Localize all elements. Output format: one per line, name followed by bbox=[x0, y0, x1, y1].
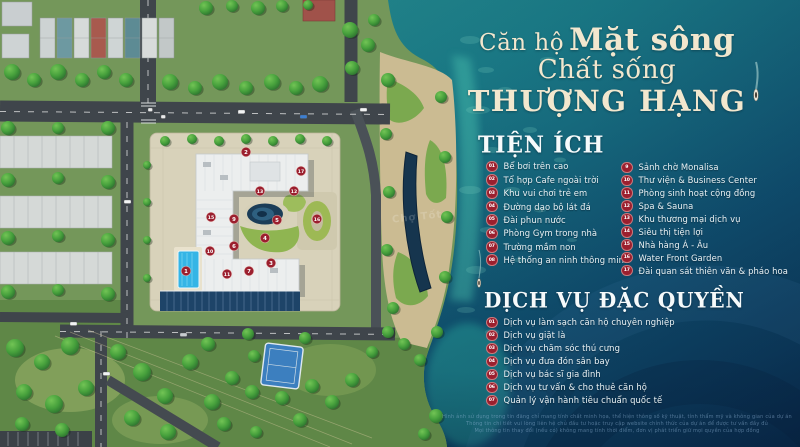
legend-number-badge: 04 bbox=[486, 356, 498, 368]
legend-item: 07Quản lý vận hành tiêu chuẩn quốc tế bbox=[486, 396, 675, 405]
legend-item: 04Dịch vụ đưa đón sân bay bbox=[486, 357, 675, 366]
headline-emphasis: Mặt sông bbox=[569, 22, 735, 58]
legend-label: Khu thương mại dịch vụ bbox=[639, 214, 741, 224]
legend-label: Nhà hàng Á - Âu bbox=[639, 240, 709, 250]
svg-text:10: 10 bbox=[207, 249, 213, 255]
legend-item: 06Dịch vụ tư vấn & cho thuê căn hộ bbox=[486, 383, 675, 392]
legend-number-badge: 05 bbox=[486, 214, 498, 226]
legend-label: Dịch vụ đưa đón sân bay bbox=[504, 356, 610, 366]
legend-item: 9Sảnh chờ Monalisa bbox=[621, 163, 788, 172]
svg-text:3: 3 bbox=[269, 261, 273, 267]
legend-item: 01Bể bơi trên cao bbox=[486, 162, 629, 171]
svg-text:17: 17 bbox=[298, 169, 304, 175]
legend-item: 17Đài quan sát thiên văn & pháo hoa bbox=[621, 266, 788, 275]
legend-label: Trường mầm non bbox=[504, 242, 576, 252]
legend-label: Dịch vụ bác sĩ gia đình bbox=[504, 369, 601, 379]
legend-label: Dịch vụ chăm sóc thú cưng bbox=[504, 343, 621, 353]
svg-text:13: 13 bbox=[257, 189, 263, 195]
legend-label: Sảnh chờ Monalisa bbox=[639, 162, 719, 172]
legend-label: Spa & Sauna bbox=[639, 201, 694, 211]
legend-item: 15Nhà hàng Á - Âu bbox=[621, 240, 788, 249]
legend-item: 01Dịch vụ làm sạch căn hộ chuyên nghiệp bbox=[486, 318, 675, 327]
legend-label: Bể bơi trên cao bbox=[504, 161, 569, 171]
disclaimer: Hình ảnh sử dụng trong tin đăng chỉ mang… bbox=[438, 414, 796, 435]
map-marker-9: 9 bbox=[229, 214, 239, 224]
legend-item: 03Khu vui chơi trẻ em bbox=[486, 189, 629, 198]
map-marker-3: 3 bbox=[266, 258, 276, 268]
legend-label: Dịch vụ tư vấn & cho thuê căn hộ bbox=[504, 382, 648, 392]
legend-label: Quản lý vận hành tiêu chuẩn quốc tế bbox=[504, 395, 663, 405]
legend-label: Water Front Garden bbox=[639, 253, 723, 263]
legend-item: 11Phòng sinh hoạt cộng đồng bbox=[621, 189, 788, 198]
legend-number-badge: 02 bbox=[486, 330, 498, 342]
legend-label: Siêu thị tiện lợi bbox=[639, 227, 704, 237]
legend-item: 05Đài phun nước bbox=[486, 216, 629, 225]
svg-text:11: 11 bbox=[224, 272, 230, 278]
legend-label: Đường dạo bộ lát đá bbox=[504, 202, 591, 212]
legend-label: Tổ hợp Cafe ngoài trời bbox=[504, 175, 599, 185]
disclaimer-line: Hình ảnh sử dụng trong tin đăng chỉ mang… bbox=[438, 414, 796, 421]
map-marker-10: 10 bbox=[205, 246, 215, 256]
legend-label: Phòng sinh hoạt cộng đồng bbox=[639, 188, 756, 198]
legend-number-badge: 03 bbox=[486, 343, 498, 355]
legend-number-badge: 13 bbox=[621, 213, 633, 225]
svg-text:16: 16 bbox=[314, 217, 320, 223]
legend-number-badge: 12 bbox=[621, 200, 633, 212]
legend-item: 06Phòng Gym trong nhà bbox=[486, 229, 629, 238]
svg-text:9: 9 bbox=[232, 217, 236, 223]
svg-text:5: 5 bbox=[275, 218, 279, 224]
legend-item: 08Hệ thống an ninh thông minh bbox=[486, 256, 629, 265]
legend-number-badge: 08 bbox=[486, 254, 498, 266]
residential-complex bbox=[150, 133, 340, 311]
map-marker-5: 5 bbox=[272, 215, 282, 225]
legend-item: 14Siêu thị tiện lợi bbox=[621, 227, 788, 236]
legend-number-badge: 06 bbox=[486, 228, 498, 240]
map-marker-13: 13 bbox=[255, 186, 265, 196]
map-marker-6: 6 bbox=[229, 241, 239, 251]
roof-core bbox=[250, 162, 280, 181]
legend-number-badge: 15 bbox=[621, 239, 633, 251]
legend-label: Thư viện & Business Center bbox=[639, 175, 757, 185]
svg-text:2: 2 bbox=[244, 150, 248, 156]
legend-label: Dịch vụ giặt là bbox=[504, 330, 566, 340]
headline-line1: Căn hộ Mặt sông bbox=[462, 24, 752, 56]
legend-number-badge: 17 bbox=[621, 265, 633, 277]
legend-label: Phòng Gym trong nhà bbox=[504, 228, 598, 238]
services-heading: DỊCH VỤ ĐẶC QUYỀN bbox=[484, 287, 745, 313]
legend-item: 12Spa & Sauna bbox=[621, 202, 788, 211]
poster: 1234567910111213151617 Căn hộ Mặt sông C… bbox=[0, 0, 800, 447]
legend-item: 02Dịch vụ giặt là bbox=[486, 331, 675, 340]
disclaimer-line: Mọi thông tin thay đổi (nếu có) không ma… bbox=[438, 428, 796, 435]
headline-line3: THƯỢNG HẠNG bbox=[462, 86, 752, 116]
services-list: 01Dịch vụ làm sạch căn hộ chuyên nghiệp0… bbox=[486, 318, 675, 405]
legend-item: 04Đường dạo bộ lát đá bbox=[486, 202, 629, 211]
map-marker-2: 2 bbox=[241, 147, 251, 157]
svg-text:6: 6 bbox=[232, 244, 236, 250]
legend-label: Đài quan sát thiên văn & pháo hoa bbox=[639, 266, 788, 276]
legend-number-badge: 02 bbox=[486, 174, 498, 186]
headline: Căn hộ Mặt sông Chất sống THƯỢNG HẠNG bbox=[462, 24, 752, 116]
map-marker-17: 17 bbox=[296, 166, 306, 176]
map-marker-16: 16 bbox=[312, 214, 322, 224]
legend-label: Đài phun nước bbox=[504, 215, 566, 225]
parking-lot bbox=[0, 431, 92, 447]
legend-number-badge: 07 bbox=[486, 395, 498, 407]
legend-number-badge: 07 bbox=[486, 241, 498, 253]
legend-number-badge: 01 bbox=[486, 161, 498, 173]
legend-number-badge: 14 bbox=[621, 226, 633, 238]
legend-number-badge: 03 bbox=[486, 187, 498, 199]
map-marker-12: 12 bbox=[289, 186, 299, 196]
map-marker-15: 15 bbox=[206, 212, 216, 222]
legend-item: 07Trường mầm non bbox=[486, 242, 629, 251]
svg-text:12: 12 bbox=[291, 189, 297, 195]
amenities-col2: 9Sảnh chờ Monalisa10Thư viện & Business … bbox=[621, 163, 788, 275]
legend-number-badge: 01 bbox=[486, 317, 498, 329]
legend-number-badge: 9 bbox=[621, 162, 633, 174]
legend-number-badge: 05 bbox=[486, 369, 498, 381]
legend-item: 13Khu thương mại dịch vụ bbox=[621, 215, 788, 224]
legend-item: 16Water Front Garden bbox=[621, 253, 788, 262]
svg-text:1: 1 bbox=[184, 269, 188, 275]
disclaimer-line: Thông tin chi tiết vui lòng liên hệ chủ … bbox=[438, 421, 796, 428]
legend-item: 10Thư viện & Business Center bbox=[621, 176, 788, 185]
svg-text:7: 7 bbox=[247, 269, 251, 275]
headline-prefix: Căn hộ bbox=[479, 30, 564, 56]
legend-label: Khu vui chơi trẻ em bbox=[504, 188, 588, 198]
legend-number-badge: 06 bbox=[486, 382, 498, 394]
legend-number-badge: 11 bbox=[621, 187, 633, 199]
left-rowhouse-strips bbox=[0, 136, 112, 284]
legend-label: Dịch vụ làm sạch căn hộ chuyên nghiệp bbox=[504, 317, 675, 327]
headline-line2: Chất sống bbox=[462, 57, 752, 84]
map-marker-7: 7 bbox=[244, 266, 254, 276]
svg-text:15: 15 bbox=[208, 215, 214, 221]
legend-number-badge: 16 bbox=[621, 252, 633, 264]
map-marker-4: 4 bbox=[260, 233, 270, 243]
svg-text:4: 4 bbox=[263, 236, 267, 242]
amenities-col1: 01Bể bơi trên cao02Tổ hợp Cafe ngoài trờ… bbox=[486, 162, 629, 265]
sports-court bbox=[261, 343, 304, 389]
legend-item: 03Dịch vụ chăm sóc thú cưng bbox=[486, 344, 675, 353]
legend-label: Hệ thống an ninh thông minh bbox=[504, 255, 630, 265]
legend-number-badge: 04 bbox=[486, 201, 498, 213]
legend-number-badge: 10 bbox=[621, 175, 633, 187]
map-marker-1: 1 bbox=[181, 266, 191, 276]
amenities-heading: TIỆN ÍCH bbox=[478, 131, 604, 159]
map-marker-11: 11 bbox=[222, 269, 232, 279]
legend-item: 02Tổ hợp Cafe ngoài trời bbox=[486, 175, 629, 184]
legend-item: 05Dịch vụ bác sĩ gia đình bbox=[486, 370, 675, 379]
